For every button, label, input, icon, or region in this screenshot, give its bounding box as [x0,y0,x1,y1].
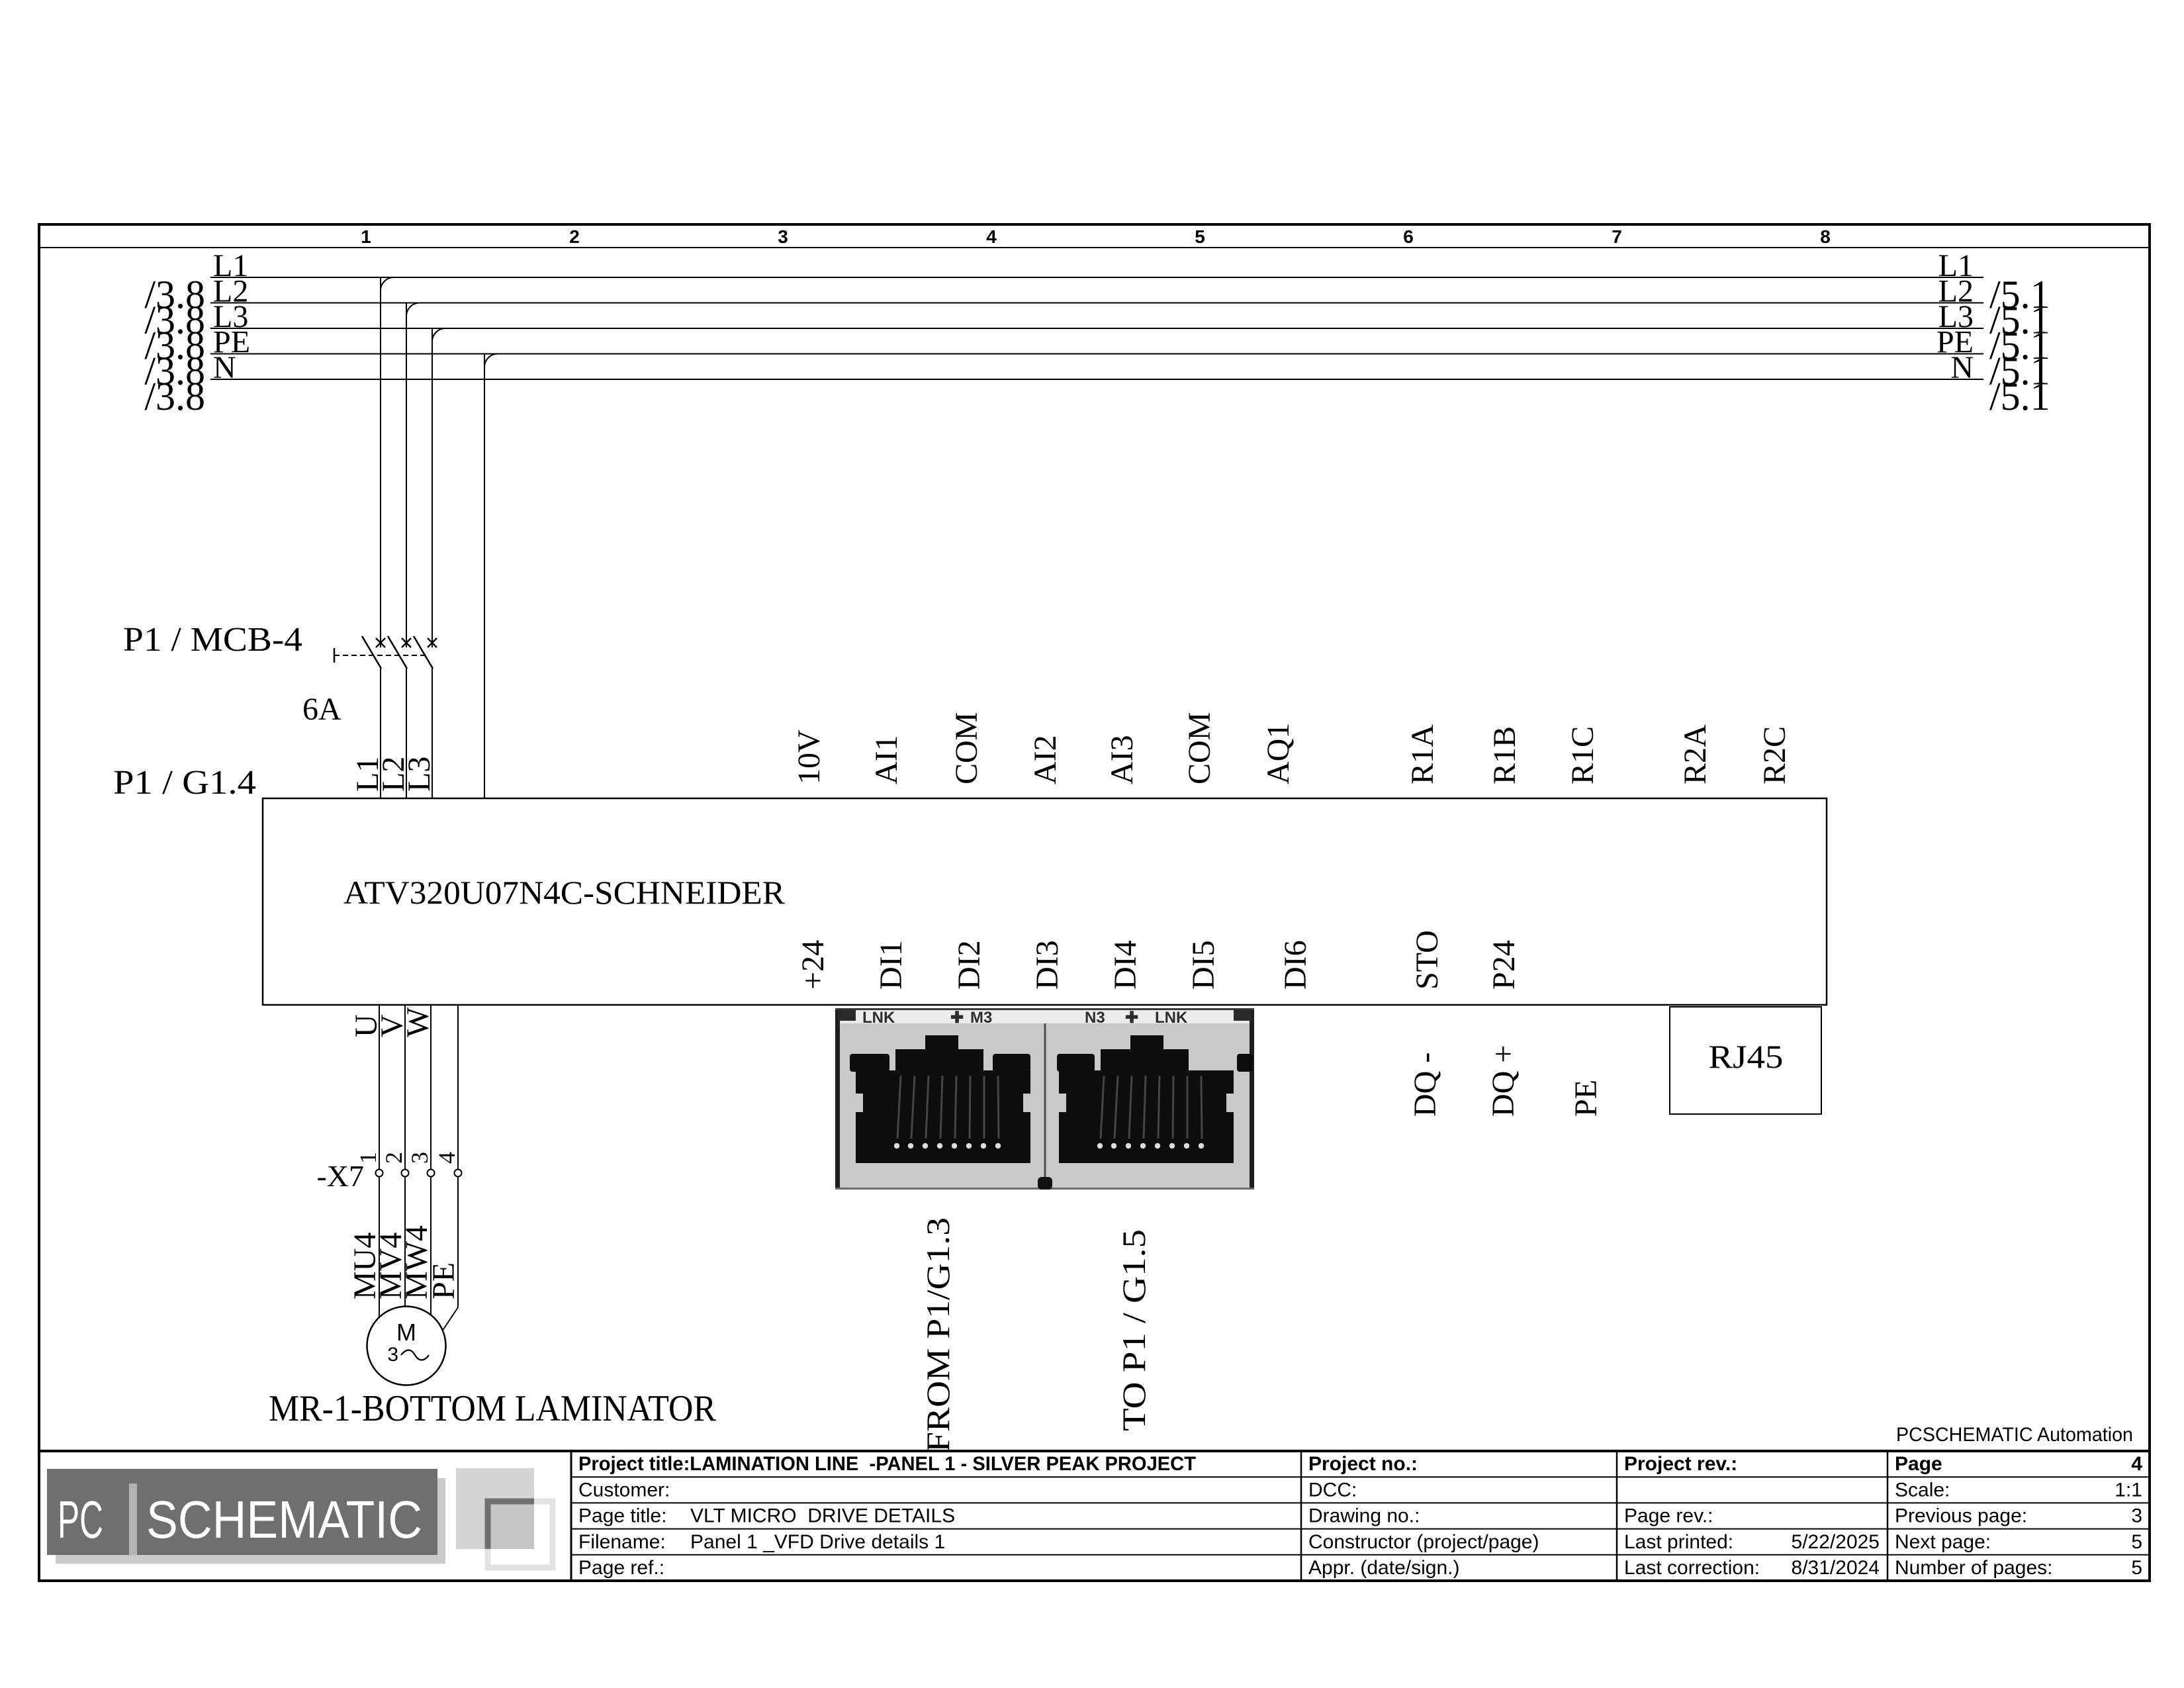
svg-text:3: 3 [406,1152,433,1164]
svg-text:✚: ✚ [950,1009,964,1027]
svg-text:Filename:: Filename: [578,1531,666,1553]
svg-text:Page rev.:: Page rev.: [1624,1505,1713,1527]
svg-text:Panel 1 _VFD Drive details 1: Panel 1 _VFD Drive details 1 [690,1531,945,1553]
svg-text:1:1: 1:1 [2115,1479,2142,1501]
svg-text:COM: COM [949,712,984,784]
svg-text:DQ -: DQ - [1408,1053,1443,1117]
svg-text:N: N [213,350,236,385]
svg-text:STO: STO [1410,930,1445,990]
svg-text:Last printed:: Last printed: [1624,1531,1733,1553]
svg-text:DQ +: DQ + [1486,1045,1521,1117]
svg-text:PE: PE [426,1262,461,1299]
svg-text:Page ref.:: Page ref.: [578,1557,664,1579]
svg-text:8: 8 [1820,226,1831,247]
svg-text:6: 6 [1403,226,1414,247]
svg-text:DI1: DI1 [874,940,909,990]
svg-text:Previous page:: Previous page: [1895,1505,2027,1527]
svg-text:PE: PE [1569,1080,1604,1117]
svg-text:Project rev.:: Project rev.: [1624,1453,1737,1475]
svg-text:P1 / MCB-4: P1 / MCB-4 [123,621,302,659]
svg-text:LNK: LNK [862,1009,895,1027]
svg-text:DCC:: DCC: [1308,1479,1357,1501]
svg-text:PCSCHEMATIC Automation: PCSCHEMATIC Automation [1896,1424,2133,1446]
svg-text:AQ1: AQ1 [1261,723,1296,784]
svg-text:4: 4 [986,226,997,247]
svg-text:LNK: LNK [1155,1009,1188,1027]
svg-text:R2C: R2C [1757,726,1792,784]
svg-text:FROM P1/G1.3: FROM P1/G1.3 [919,1217,956,1452]
svg-text:TO P1 / G1.5: TO P1 / G1.5 [1115,1229,1152,1431]
svg-text:M: M [396,1319,416,1346]
svg-text:DI4: DI4 [1108,940,1143,990]
svg-text:7: 7 [1612,226,1622,247]
svg-text:M3: M3 [970,1009,992,1027]
svg-text:+24: +24 [796,940,831,990]
svg-text:Number of pages:: Number of pages: [1895,1557,2052,1579]
svg-text:-X7: -X7 [316,1159,364,1193]
svg-text:COM: COM [1182,712,1217,784]
svg-text:AI1: AI1 [869,735,904,784]
svg-text:DI6: DI6 [1278,940,1313,990]
svg-text:5: 5 [2131,1531,2142,1553]
svg-text:DI3: DI3 [1030,940,1065,990]
svg-text:PC: PC [58,1490,103,1549]
svg-text:Page title:: Page title: [578,1505,666,1527]
svg-text:2: 2 [569,226,580,247]
svg-text:DI5: DI5 [1186,940,1221,990]
svg-text:RJ45: RJ45 [1709,1038,1784,1075]
svg-text:5/22/2025: 5/22/2025 [1792,1531,1880,1553]
svg-text:ATV320U07N4C-SCHNEIDER: ATV320U07N4C-SCHNEIDER [343,874,786,911]
svg-text:8/31/2024: 8/31/2024 [1792,1557,1880,1579]
svg-text:10V: 10V [792,729,827,784]
svg-text:Next page:: Next page: [1895,1531,1991,1553]
svg-text:5: 5 [2131,1557,2142,1579]
svg-text:SCHEMATIC: SCHEMATIC [146,1490,422,1549]
svg-text:Last correction:: Last correction: [1624,1557,1760,1579]
svg-text:/5.1: /5.1 [1989,375,2050,418]
svg-text:6A: 6A [302,692,341,727]
svg-text:1: 1 [361,226,371,247]
svg-text:3: 3 [387,1344,398,1366]
svg-text:P1 / G1.4: P1 / G1.4 [113,764,256,802]
svg-text:R1C: R1C [1565,726,1600,784]
svg-text:MR-1-BOTTOM LAMINATOR: MR-1-BOTTOM LAMINATOR [269,1388,717,1429]
svg-text:5: 5 [1195,226,1205,247]
svg-text:Constructor (project/page): Constructor (project/page) [1308,1531,1539,1553]
svg-text:✚: ✚ [1125,1009,1138,1027]
svg-text:2: 2 [381,1152,407,1164]
svg-text:Page: Page [1895,1453,1942,1475]
svg-text:AI2: AI2 [1028,735,1063,784]
svg-text:P24: P24 [1486,940,1522,990]
svg-text:Drawing no.:: Drawing no.: [1308,1505,1420,1527]
svg-text:N: N [1950,350,1974,385]
svg-text:R1A: R1A [1405,724,1440,784]
svg-text:Customer:: Customer: [578,1479,670,1501]
svg-text:Project title:LAMINATION LINE: Project title:LAMINATION LINE -PANEL 1 -… [578,1453,1196,1475]
svg-text:R2A: R2A [1678,724,1713,784]
svg-text:VLT MICRO DRIVE DETAILS: VLT MICRO DRIVE DETAILS [690,1505,955,1527]
svg-text:/3.8: /3.8 [144,375,205,418]
svg-text:3: 3 [778,226,788,247]
svg-text:AI3: AI3 [1105,735,1140,784]
svg-text:W: W [400,1007,435,1037]
svg-text:R1B: R1B [1487,726,1522,784]
svg-text:Scale:: Scale: [1895,1479,1950,1501]
svg-text:L3: L3 [402,757,437,792]
svg-text:N3: N3 [1085,1009,1105,1027]
svg-text:Appr. (date/sign.): Appr. (date/sign.) [1308,1557,1459,1579]
svg-text:4: 4 [433,1152,460,1164]
svg-text:3: 3 [2131,1505,2142,1527]
svg-text:DI2: DI2 [952,940,987,990]
svg-text:4: 4 [2131,1453,2142,1475]
svg-text:Project no.:: Project no.: [1308,1453,1418,1475]
